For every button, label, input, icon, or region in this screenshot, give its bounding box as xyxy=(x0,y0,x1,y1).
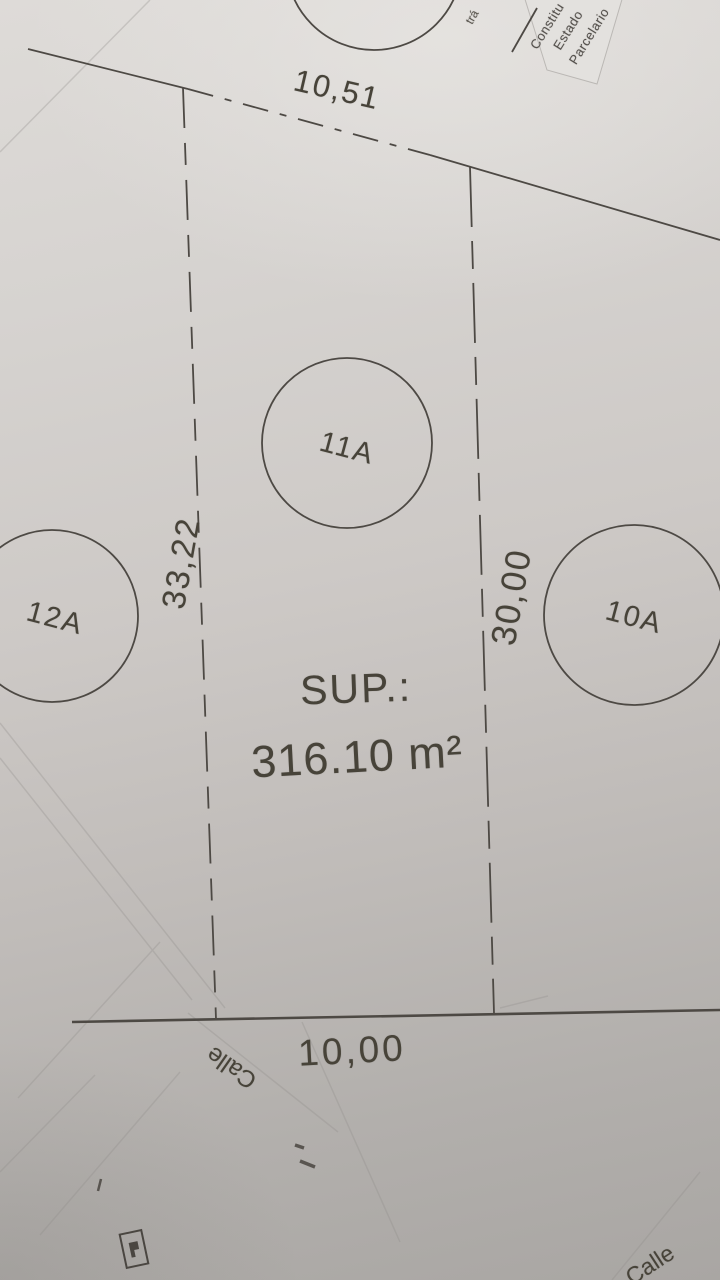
street-line xyxy=(72,1010,720,1022)
crease-line xyxy=(0,1075,95,1172)
dimension-bottom: 10,00 xyxy=(297,1027,407,1075)
crease-line xyxy=(0,758,192,1000)
survey-plan-photo: 10,51 33,22 30,00 10,00 11A 12A 10A SUP.… xyxy=(0,0,720,1280)
surface-label: SUP.: xyxy=(299,664,412,715)
stamp-mark xyxy=(120,1230,149,1268)
crease-line xyxy=(0,723,225,1008)
tick-mark xyxy=(300,1161,315,1167)
stamp-mark-glyph xyxy=(129,1241,141,1258)
plan-linework xyxy=(0,0,720,1280)
surface-value: 316.10 m² xyxy=(250,725,464,788)
tick-mark xyxy=(295,1145,304,1148)
pen-tick-marks xyxy=(98,1145,315,1191)
balloon-top-cutoff xyxy=(286,0,462,50)
block-top-line-right xyxy=(430,155,720,240)
block-top-line xyxy=(28,49,188,89)
parcel-boundaries xyxy=(28,8,720,1022)
tick-mark xyxy=(98,1179,101,1191)
paper-crease-lines xyxy=(0,0,700,1280)
parcel-right-dashed-line xyxy=(470,167,494,1013)
crease-line xyxy=(0,0,150,152)
crease-line xyxy=(500,996,548,1008)
crease-line xyxy=(40,1072,180,1235)
